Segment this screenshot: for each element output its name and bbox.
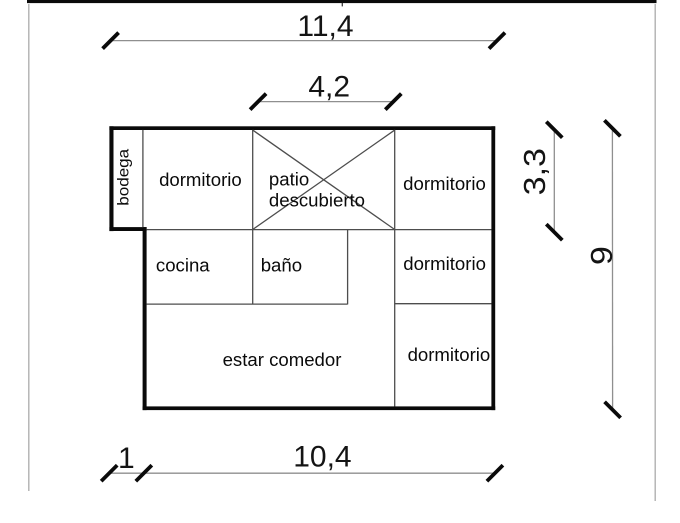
svg-text:dormitorio: dormitorio [159,169,242,190]
svg-text:bodega: bodega [115,148,132,206]
svg-text:estar comedor: estar comedor [223,349,342,370]
svg-text:3,3: 3,3 [517,148,551,195]
svg-text:descubierto: descubierto [269,189,365,210]
svg-text:dormitorio: dormitorio [408,344,491,365]
svg-text:4,2: 4,2 [308,70,350,103]
svg-text:cocina: cocina [156,254,210,275]
svg-text:9: 9 [584,246,618,265]
svg-text:dormitorio: dormitorio [403,253,486,274]
svg-text:dormitorio: dormitorio [403,173,486,194]
svg-text:baño: baño [261,254,302,275]
svg-text:patio: patio [269,168,309,189]
svg-text:1: 1 [118,442,135,475]
svg-text:10,4: 10,4 [293,440,351,473]
svg-text:11,4: 11,4 [297,10,353,43]
